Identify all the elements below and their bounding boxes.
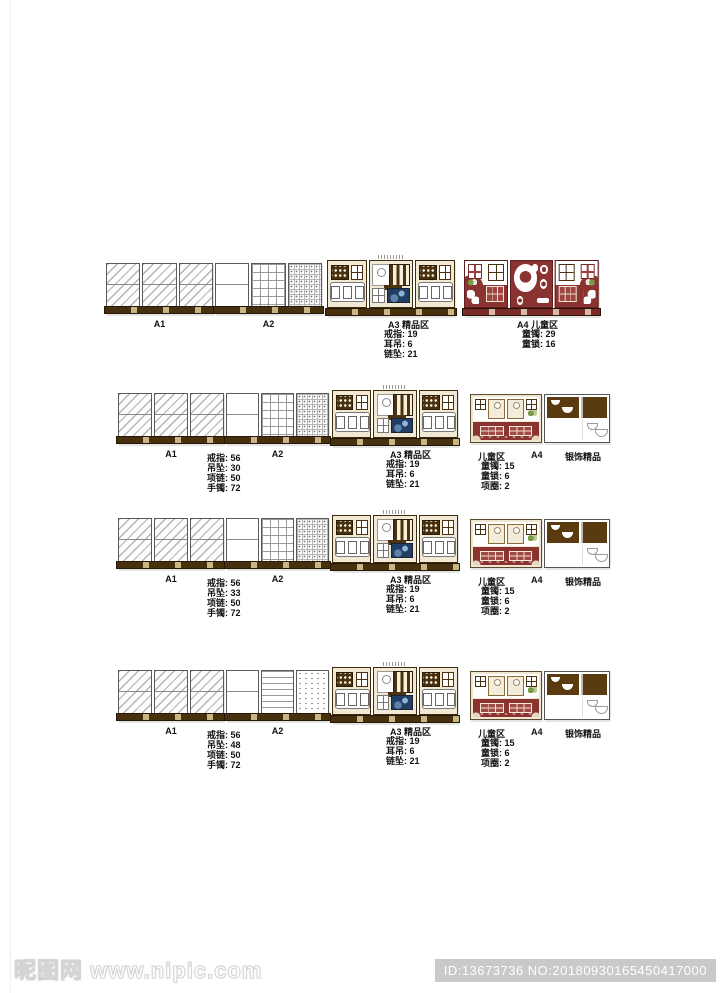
hatch-panel xyxy=(118,393,152,437)
count-line: 手镯: 72 xyxy=(207,760,241,770)
count-line: 戒指: 56 xyxy=(207,730,241,740)
count-line: 链坠: 21 xyxy=(386,479,420,489)
card-tray xyxy=(330,282,365,301)
a2-label: A2 xyxy=(226,574,329,584)
counter-base xyxy=(330,438,460,446)
panel-strip xyxy=(464,260,599,308)
kids-upper-shelf xyxy=(473,522,539,546)
counter-base xyxy=(330,563,460,571)
kids-display-grid xyxy=(509,426,533,436)
counter-base xyxy=(116,561,226,569)
display-group-a2 xyxy=(226,670,329,721)
circle-ornament xyxy=(532,264,537,271)
silver-bowl-shelf xyxy=(582,420,607,440)
display-case xyxy=(331,265,349,281)
boutique-panel-center xyxy=(373,390,417,438)
boutique-panel xyxy=(419,667,458,715)
kids-panel-side xyxy=(555,260,599,308)
display-group-a1 xyxy=(106,263,213,314)
kids-counts: 童镯: 15 童锁: 6 项圈: 2 xyxy=(481,738,515,768)
plain-panel xyxy=(215,263,249,307)
counter-base xyxy=(104,306,215,314)
display-case xyxy=(336,520,354,536)
a4-label: A4 xyxy=(531,450,543,460)
hanging-display xyxy=(389,264,410,285)
count-line: 项链: 50 xyxy=(207,473,241,483)
silver-bowl-shelf xyxy=(582,545,607,565)
poster-image xyxy=(391,418,413,434)
silver-display-box xyxy=(583,522,607,543)
fine-grid-panel xyxy=(288,263,322,307)
display-group-a3-boutique xyxy=(327,260,455,316)
kids-display-grid xyxy=(509,551,533,561)
hanging-display xyxy=(393,671,413,692)
window-grid xyxy=(356,395,368,411)
counter-base xyxy=(213,306,324,314)
kids-zone-panel xyxy=(470,671,542,720)
panel-strip xyxy=(332,515,458,563)
display-case xyxy=(336,672,354,688)
a2-label: A2 xyxy=(226,726,329,736)
count-line: 耳吊: 6 xyxy=(386,746,420,756)
panel-strip xyxy=(106,263,213,307)
silver-display-box xyxy=(547,674,579,695)
window-grid xyxy=(442,395,454,411)
grid-panel xyxy=(261,393,294,437)
plan-row-4: A1 A2 戒指: 56 吊坠: 48 项链: 50 手镯: 72 A3 精品区… xyxy=(0,670,724,795)
mirror-board xyxy=(372,264,390,285)
count-line: 耳吊: 6 xyxy=(386,469,420,479)
counter-base xyxy=(224,713,331,721)
window-grid xyxy=(475,524,486,535)
panel-strip xyxy=(226,393,329,437)
window-grid xyxy=(356,672,368,688)
window-grid xyxy=(526,676,537,687)
silver-zone-label: 银饰精品 xyxy=(565,450,601,463)
silver-panel xyxy=(544,394,610,443)
silver-zone-panel xyxy=(544,394,610,443)
silver-display-box xyxy=(583,397,607,418)
silver-display-box xyxy=(547,522,579,543)
fine-grid-panel xyxy=(296,393,329,437)
kids-display-grid xyxy=(486,286,505,303)
poster-image xyxy=(391,695,413,711)
count-line: 戒指: 56 xyxy=(207,578,241,588)
kids-counts: 童镯: 15 童锁: 6 项圈: 2 xyxy=(481,461,515,491)
window-grid xyxy=(475,676,486,687)
flower-ornament xyxy=(587,279,596,286)
kids-upper-shelf xyxy=(473,674,539,698)
a4-counts: 童镯: 29 童锁: 16 xyxy=(522,329,556,349)
count-line: 耳吊: 6 xyxy=(386,594,420,604)
boutique-panel xyxy=(332,390,371,438)
flower-ornament xyxy=(468,279,477,286)
display-group-a2 xyxy=(226,518,329,569)
counter-base xyxy=(224,436,331,444)
card-tray xyxy=(418,282,453,301)
count-line: 手镯: 72 xyxy=(207,483,241,493)
count-line: 手镯: 72 xyxy=(207,608,241,618)
plan-row-3: A1 A2 戒指: 56 吊坠: 33 项链: 50 手镯: 72 A3 精品区… xyxy=(0,518,724,643)
top-ornament xyxy=(383,385,408,389)
circle-ornaments xyxy=(584,290,596,305)
window-grid xyxy=(488,264,504,281)
kids-display-grid xyxy=(509,703,533,713)
plan-row-2: A1 A2 戒指: 56 吊坠: 30 项链: 50 手镯: 72 A3 精品区… xyxy=(0,393,724,518)
count-line: 戒指: 56 xyxy=(207,453,241,463)
kids-display-grid xyxy=(480,703,504,713)
a2-label: A2 xyxy=(226,449,329,459)
hatch-panel xyxy=(154,670,188,714)
window-grid xyxy=(559,264,575,281)
window-grid xyxy=(475,399,486,410)
counter-base xyxy=(116,436,226,444)
counter-base xyxy=(325,308,457,316)
window-grid xyxy=(356,520,368,536)
hatch-panel xyxy=(190,670,224,714)
display-board xyxy=(488,676,505,696)
a3-counts: 戒指: 19 耳吊: 6 链坠: 21 xyxy=(384,329,418,359)
kids-zone-panel xyxy=(470,519,542,568)
display-group-a1 xyxy=(118,670,224,721)
toy-window xyxy=(581,264,595,279)
window-grid xyxy=(377,543,390,559)
dotted-panel xyxy=(296,670,329,714)
hatch-panel xyxy=(154,393,188,437)
kids-panel-side xyxy=(464,260,508,308)
boutique-panel-center xyxy=(373,515,417,563)
count-line: 链坠: 21 xyxy=(386,756,420,766)
plain-panel xyxy=(226,670,259,714)
mirror-board xyxy=(377,394,395,415)
count-line: 戒指: 19 xyxy=(386,459,420,469)
a3-counts: 戒指: 19 耳吊: 6 链坠: 21 xyxy=(386,736,420,766)
lined-panel xyxy=(261,670,294,714)
boutique-panel-center xyxy=(369,260,413,308)
display-group-a3-boutique xyxy=(332,515,458,571)
boutique-panel xyxy=(419,515,458,563)
kids-display-grid xyxy=(480,426,504,436)
grid-panel xyxy=(261,518,294,562)
circle-ornament xyxy=(517,296,523,304)
kids-panel-center xyxy=(510,260,554,308)
count-line: 童镯: 29 xyxy=(522,329,556,339)
a3-counts: 戒指: 19 耳吊: 6 链坠: 21 xyxy=(386,584,420,614)
silver-zone-label: 银饰精品 xyxy=(565,575,601,588)
card-tray xyxy=(335,689,369,708)
card-tray xyxy=(422,412,456,431)
kids-lower-shelf xyxy=(473,547,539,565)
top-ornament xyxy=(383,662,408,666)
card-tray xyxy=(422,689,456,708)
plain-panel xyxy=(226,518,259,562)
kids-counts: 童镯: 15 童锁: 6 项圈: 2 xyxy=(481,586,515,616)
count-line: 童锁: 6 xyxy=(481,748,515,758)
hatch-panel xyxy=(154,518,188,562)
panel-strip xyxy=(332,390,458,438)
window-grid xyxy=(372,288,385,304)
display-group-a3-boutique xyxy=(332,667,458,723)
card-tray xyxy=(422,537,456,556)
display-board xyxy=(507,524,524,544)
a4-label: A4 xyxy=(531,727,543,737)
kids-lower-shelf xyxy=(473,699,539,717)
count-line: 童镯: 15 xyxy=(481,586,515,596)
display-group-a2 xyxy=(226,393,329,444)
panel-strip xyxy=(327,260,455,308)
boutique-panel xyxy=(419,390,458,438)
panel-strip xyxy=(332,667,458,715)
poster-image xyxy=(387,288,409,304)
leaf-ornament xyxy=(528,410,537,416)
display-group-a3-boutique xyxy=(332,390,458,446)
silver-zone-panel xyxy=(544,671,610,720)
hatch-panel xyxy=(190,518,224,562)
leaf-ornament xyxy=(528,535,537,541)
zone-counts: 戒指: 56 吊坠: 30 项链: 50 手镯: 72 xyxy=(207,453,241,493)
shelf-pill xyxy=(537,298,550,303)
count-line: 项圈: 2 xyxy=(481,481,515,491)
a1-label: A1 xyxy=(106,319,213,329)
poster-image xyxy=(391,543,413,559)
kids-zone-panel xyxy=(470,394,542,443)
counter-base xyxy=(224,561,331,569)
top-ornament xyxy=(383,510,408,514)
display-board xyxy=(507,676,524,696)
a4-label: A4 xyxy=(531,575,543,585)
count-line: 吊坠: 33 xyxy=(207,588,241,598)
zone-counts: 戒指: 56 吊坠: 48 项链: 50 手镯: 72 xyxy=(207,730,241,770)
kids-lower-shelf xyxy=(473,422,539,440)
count-line: 吊坠: 48 xyxy=(207,740,241,750)
hatch-panel xyxy=(118,518,152,562)
panel-strip xyxy=(226,670,329,714)
counter-base xyxy=(330,715,460,723)
kids-panel xyxy=(470,671,542,720)
kids-panel xyxy=(470,519,542,568)
toy-window xyxy=(468,264,482,279)
counter-base xyxy=(116,713,226,721)
window-grid xyxy=(377,418,390,434)
boutique-panel xyxy=(327,260,367,308)
count-line: 童锁: 6 xyxy=(481,596,515,606)
hatch-panel xyxy=(179,263,213,307)
count-line: 链坠: 21 xyxy=(386,604,420,614)
top-ornament xyxy=(378,255,403,259)
card-tray xyxy=(335,412,369,431)
display-group-a2 xyxy=(215,263,322,314)
count-line: 项圈: 2 xyxy=(481,606,515,616)
a2-label: A2 xyxy=(215,319,322,329)
panel-strip xyxy=(215,263,322,307)
id-badge: ID:13673736 NO:20180930165450417000 xyxy=(435,959,716,982)
silver-display-box xyxy=(547,397,579,418)
count-line: 项圈: 2 xyxy=(481,758,515,768)
kids-display-grid xyxy=(559,286,578,303)
display-board xyxy=(488,399,505,419)
window-grid xyxy=(526,524,537,535)
panel-strip xyxy=(118,518,224,562)
mirror-board xyxy=(377,519,395,540)
display-group-a1 xyxy=(118,518,224,569)
fine-grid-panel xyxy=(296,518,329,562)
silver-zone-label: 银饰精品 xyxy=(565,727,601,740)
grid-panel xyxy=(251,263,285,307)
hanging-display xyxy=(393,394,413,415)
display-case xyxy=(422,395,440,411)
count-line: 童镯: 15 xyxy=(481,461,515,471)
counter-base xyxy=(462,308,601,316)
kids-panel xyxy=(470,394,542,443)
hanging-display xyxy=(393,519,413,540)
silver-panel xyxy=(544,671,610,720)
plain-panel xyxy=(226,393,259,437)
zone-counts: 戒指: 56 吊坠: 33 项链: 50 手镯: 72 xyxy=(207,578,241,618)
plan-row-1: A1 A2 A3 精品区 戒指: 19 耳吊: 6 链坠: 21 A4 儿童区 … xyxy=(0,263,724,388)
count-line: 戒指: 19 xyxy=(386,736,420,746)
circle-ornament xyxy=(540,279,547,288)
mirror-board xyxy=(377,671,395,692)
count-line: 童镯: 15 xyxy=(481,738,515,748)
card-tray xyxy=(335,537,369,556)
panel-strip xyxy=(226,518,329,562)
hatch-panel xyxy=(190,393,224,437)
count-line: 耳吊: 6 xyxy=(384,339,418,349)
panel-strip xyxy=(118,670,224,714)
count-line: 项链: 50 xyxy=(207,750,241,760)
display-group-a1 xyxy=(118,393,224,444)
display-case xyxy=(419,265,437,281)
boutique-panel-center xyxy=(373,667,417,715)
window-grid xyxy=(439,265,451,281)
count-line: 吊坠: 30 xyxy=(207,463,241,473)
boutique-panel xyxy=(415,260,455,308)
hatch-panel xyxy=(106,263,140,307)
silver-panel xyxy=(544,519,610,568)
count-line: 链坠: 21 xyxy=(384,349,418,359)
window-grid xyxy=(526,399,537,410)
display-group-a4-kids xyxy=(464,260,599,316)
window-grid xyxy=(442,520,454,536)
display-case xyxy=(336,395,354,411)
panel-strip xyxy=(118,393,224,437)
count-line: 童锁: 16 xyxy=(522,339,556,349)
hatch-panel xyxy=(118,670,152,714)
kids-upper-shelf xyxy=(473,397,539,421)
circle-ornaments xyxy=(467,290,479,305)
window-grid xyxy=(351,265,363,281)
boutique-panel xyxy=(332,667,371,715)
window-grid xyxy=(442,672,454,688)
display-case xyxy=(422,520,440,536)
display-board xyxy=(507,399,524,419)
site-watermark: 昵图网 www.nipic.com xyxy=(14,953,262,985)
hatch-panel xyxy=(142,263,176,307)
kids-display-grid xyxy=(480,551,504,561)
count-line: 戒指: 19 xyxy=(386,584,420,594)
count-line: 项链: 50 xyxy=(207,598,241,608)
silver-bowl-shelf xyxy=(582,697,607,717)
count-line: 戒指: 19 xyxy=(384,329,418,339)
window-grid xyxy=(377,695,390,711)
leaf-ornament xyxy=(528,687,537,693)
ring-ornament xyxy=(540,265,547,274)
boutique-panel xyxy=(332,515,371,563)
design-sheet: A1 A2 A3 精品区 戒指: 19 耳吊: 6 链坠: 21 A4 儿童区 … xyxy=(0,0,724,993)
silver-zone-panel xyxy=(544,519,610,568)
display-board xyxy=(488,524,505,544)
display-case xyxy=(422,672,440,688)
a3-counts: 戒指: 19 耳吊: 6 链坠: 21 xyxy=(386,459,420,489)
count-line: 童锁: 6 xyxy=(481,471,515,481)
silver-display-box xyxy=(583,674,607,695)
